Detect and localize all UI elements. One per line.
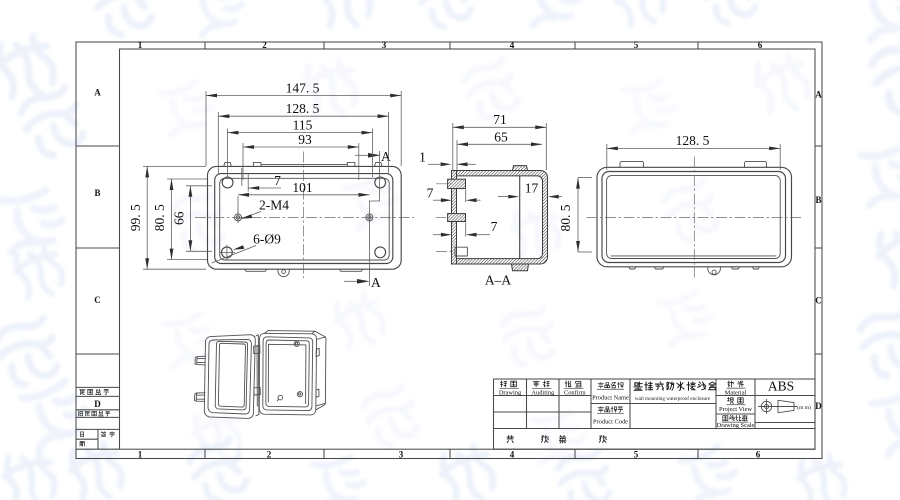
svg-text:5: 5 [634, 40, 639, 50]
svg-text:C: C [94, 295, 101, 305]
svg-text:93: 93 [298, 132, 312, 147]
svg-text:3: 3 [382, 40, 387, 50]
svg-text:115: 115 [293, 118, 313, 133]
svg-text:(m m): (m m) [797, 404, 811, 411]
svg-text:2-M4: 2-M4 [259, 198, 289, 213]
svg-text:80. 5: 80. 5 [152, 204, 167, 231]
svg-text:7: 7 [427, 186, 434, 201]
svg-text:4: 4 [510, 450, 515, 460]
svg-text:71: 71 [493, 112, 507, 127]
svg-text:1: 1 [419, 150, 426, 165]
svg-text:Drawing Scale: Drawing Scale [717, 422, 755, 429]
svg-text:Drawing: Drawing [499, 389, 522, 396]
svg-text:A: A [381, 149, 391, 164]
svg-text:6-Ø9: 6-Ø9 [253, 232, 281, 247]
svg-text:2: 2 [262, 40, 267, 50]
svg-text:A: A [371, 275, 381, 290]
svg-text:65: 65 [494, 129, 508, 144]
svg-text:B: B [94, 188, 100, 198]
svg-text:Project View: Project View [719, 406, 752, 413]
svg-text:Product Code: Product Code [593, 419, 628, 426]
svg-text:Auditing: Auditing [531, 389, 555, 396]
svg-text:3: 3 [399, 450, 404, 460]
svg-text:2: 2 [267, 450, 272, 460]
svg-text:17: 17 [525, 181, 539, 196]
svg-text:C: C [815, 296, 822, 306]
svg-text:80. 5: 80. 5 [558, 204, 573, 231]
svg-text:Product Name: Product Name [592, 395, 629, 402]
svg-text:Material: Material [725, 389, 747, 396]
svg-text:wall mounting waterproof enclo: wall mounting waterproof enclosure [635, 395, 711, 402]
svg-text:A–A: A–A [485, 273, 511, 288]
svg-text:7: 7 [274, 173, 281, 188]
svg-text:6: 6 [758, 40, 763, 50]
svg-text:6: 6 [756, 450, 761, 460]
svg-text:5: 5 [634, 450, 639, 460]
svg-text:A: A [94, 88, 101, 98]
svg-text:Confirm: Confirm [564, 389, 586, 396]
svg-text:1: 1 [138, 40, 143, 50]
svg-text:128. 5: 128. 5 [286, 101, 320, 116]
svg-text:1: 1 [138, 450, 143, 460]
svg-text:D: D [94, 399, 101, 409]
svg-text:D: D [815, 401, 822, 411]
svg-text:A: A [815, 90, 822, 100]
svg-text:4: 4 [510, 40, 515, 50]
svg-text:B: B [815, 195, 821, 205]
svg-text:7: 7 [491, 219, 498, 234]
svg-text:99. 5: 99. 5 [128, 204, 143, 231]
svg-text:66: 66 [172, 211, 187, 225]
svg-text:101: 101 [292, 180, 312, 195]
svg-text:147. 5: 147. 5 [286, 81, 320, 96]
svg-text:ABS: ABS [768, 378, 794, 393]
svg-text:128. 5: 128. 5 [676, 133, 710, 148]
